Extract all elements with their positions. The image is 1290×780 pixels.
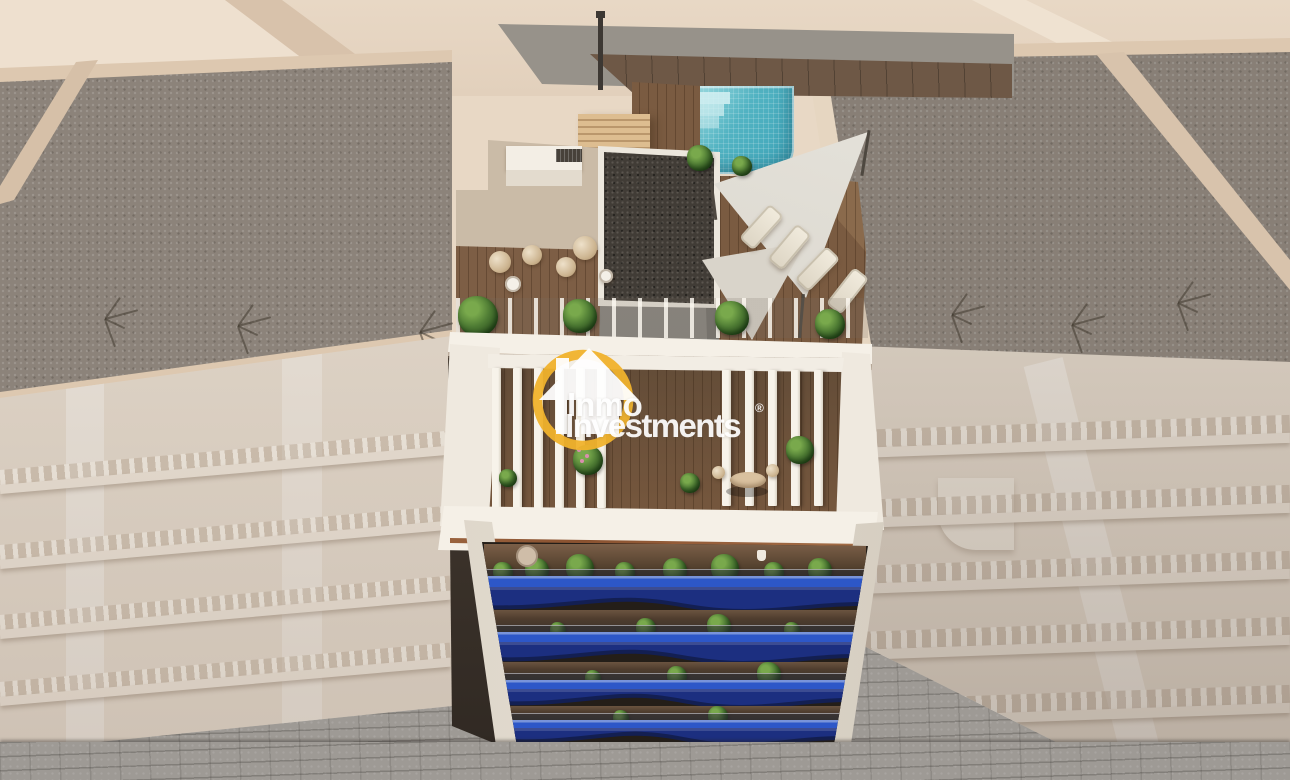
watermark-line2: Investments [565, 409, 740, 442]
terrace-plant [499, 469, 517, 487]
attic-table-disc [516, 545, 538, 567]
mid-round-table [730, 472, 766, 488]
mid-chair [712, 466, 725, 479]
white-planter-pot [757, 550, 766, 561]
street-front [0, 742, 1290, 780]
pergola-slat [492, 368, 501, 508]
architectural-render: Inmo Investments ® [0, 0, 1290, 780]
mid-chair [766, 464, 779, 477]
terrace-plant [680, 473, 700, 493]
watermark-logo: Inmo Investments ® [518, 336, 818, 460]
watermark-registered-mark: ® [755, 402, 764, 414]
